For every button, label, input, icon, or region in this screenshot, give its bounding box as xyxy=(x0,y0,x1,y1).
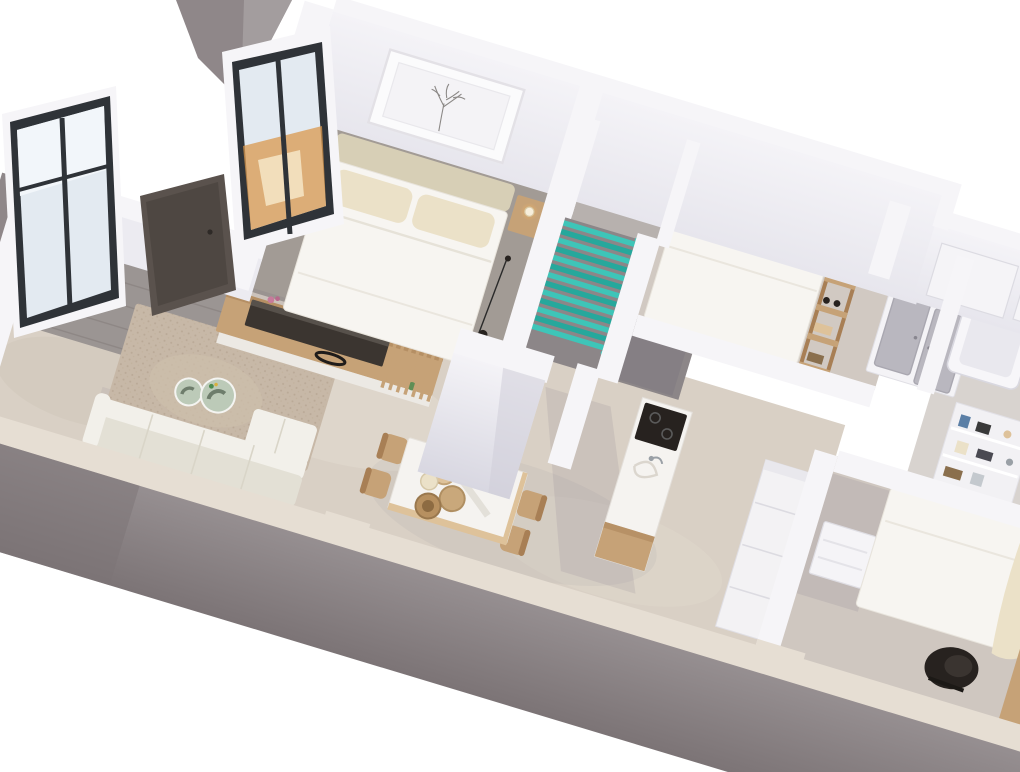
window-upper xyxy=(222,26,344,254)
door-knob xyxy=(207,229,212,234)
window-left xyxy=(2,86,126,338)
floor-plan-render xyxy=(0,0,1020,772)
apartment-3d-svg xyxy=(0,0,1020,772)
